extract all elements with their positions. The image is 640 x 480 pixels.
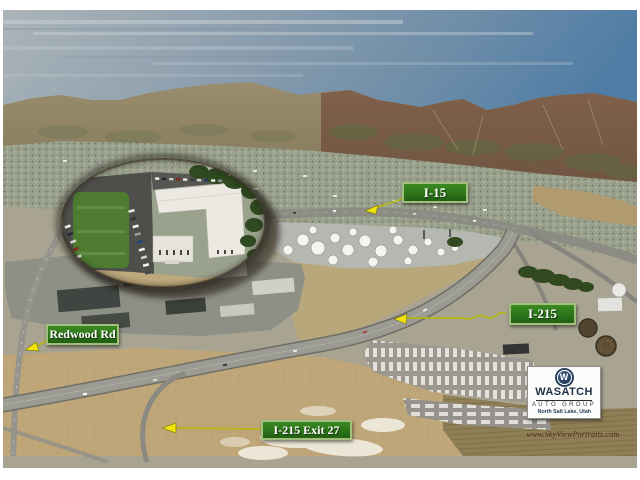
i215-label: I-215	[509, 303, 576, 325]
wasatch-location: North Salt Lake, Utah	[537, 410, 590, 415]
photographer-credit: www.SkyViewPortraits.com	[512, 430, 634, 439]
i15-label: I-15	[402, 182, 468, 203]
i15-label-text: I-15	[424, 185, 446, 201]
wasatch-logo-card: W WASATCH AUTO GROUP North Salt Lake, Ut…	[527, 366, 601, 419]
i215-label-text: I-215	[528, 306, 557, 322]
redwood-rd-label-text: Redwood Rd	[49, 327, 115, 342]
wasatch-w-circle-icon: W	[557, 370, 572, 385]
wasatch-monogram: W	[560, 373, 569, 382]
wasatch-division: AUTO GROUP	[532, 402, 596, 409]
exit-27-label-text: I-215 Exit 27	[274, 423, 340, 438]
showroom-front	[153, 236, 193, 262]
aerial-photo: I-15 I-215 Redwood Rd I-215 Exit 27 W WA…	[3, 10, 637, 468]
arrow-redwood-rd-icon	[25, 340, 47, 351]
wasatch-name: WASATCH	[535, 387, 593, 399]
redwood-rd-label: Redwood Rd	[46, 324, 119, 345]
settling-ponds	[579, 283, 626, 356]
aerial-photo-frame: I-15 I-215 Redwood Rd I-215 Exit 27 W WA…	[0, 0, 640, 480]
logo-divider	[536, 400, 592, 401]
exit-27-label: I-215 Exit 27	[261, 420, 352, 440]
